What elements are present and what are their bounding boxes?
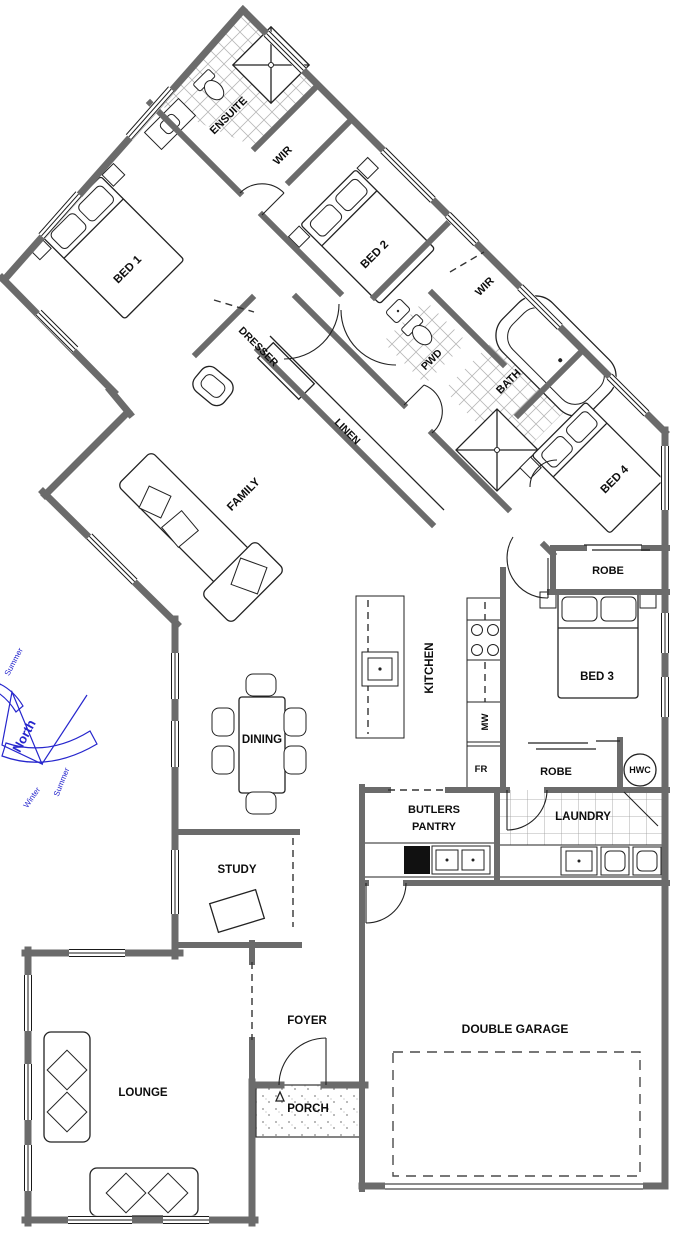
room-label-pantry: PANTRY [412,821,457,833]
compass-label-summer-top: Summer [3,646,25,677]
entry-door [279,1038,326,1085]
garage-parking-outline [393,1052,640,1176]
room-label-kitchen: KITCHEN [424,642,436,693]
pantry-bench [364,843,497,877]
fixtures [29,27,667,1216]
room-label-wir-ensuite: WIR [271,144,295,168]
ensuite-door [240,184,284,215]
compass-rose: North Summer Summer Winter [0,646,97,810]
room-label-bed3: BED 3 [580,671,614,683]
washer-icon [601,847,629,875]
label-hwc: HWC [629,765,651,775]
cooktop-icon [467,620,503,660]
desk-icon [210,890,265,933]
label-mw: MW [480,714,491,731]
room-label-family: FAMILY [225,476,263,514]
garage-access-door [366,883,406,923]
compass-label-winter: Winter [22,785,43,809]
room-label-porch: PORCH [287,1103,329,1115]
armchair-icon [189,362,237,409]
room-label-laundry: LAUNDRY [555,811,611,823]
bed-icon [29,164,197,332]
compass-label-summer-bottom: Summer [52,766,72,798]
floor-plan-drawing: ENSUITE WIR BED 1 BED 2 WIR DRESSER PWD … [0,0,690,1241]
garage-door [385,1180,643,1192]
room-label-wir-bed2: WIR [473,275,497,299]
room-label-dining: DINING [242,734,282,746]
room-label-lounge: LOUNGE [118,1087,168,1099]
room-label-study: STUDY [218,864,257,876]
room-label-double-garage: DOUBLE GARAGE [462,1022,569,1036]
island-bench-icon [356,596,404,738]
label-fr: FR [475,764,488,775]
room-label-robe-bed3: ROBE [540,766,572,778]
room-label-foyer: FOYER [287,1015,327,1027]
bed-icon [289,158,447,316]
dryer-icon [633,847,661,875]
hall-double-doors [284,304,396,365]
room-label-robe-bed4: ROBE [592,565,624,577]
compass-label-north: North [9,717,39,755]
pwd-door [404,385,442,433]
floor-plan-page: ENSUITE WIR BED 1 BED 2 WIR DRESSER PWD … [0,0,690,1241]
room-label-butlers: BUTLERS [408,804,460,816]
